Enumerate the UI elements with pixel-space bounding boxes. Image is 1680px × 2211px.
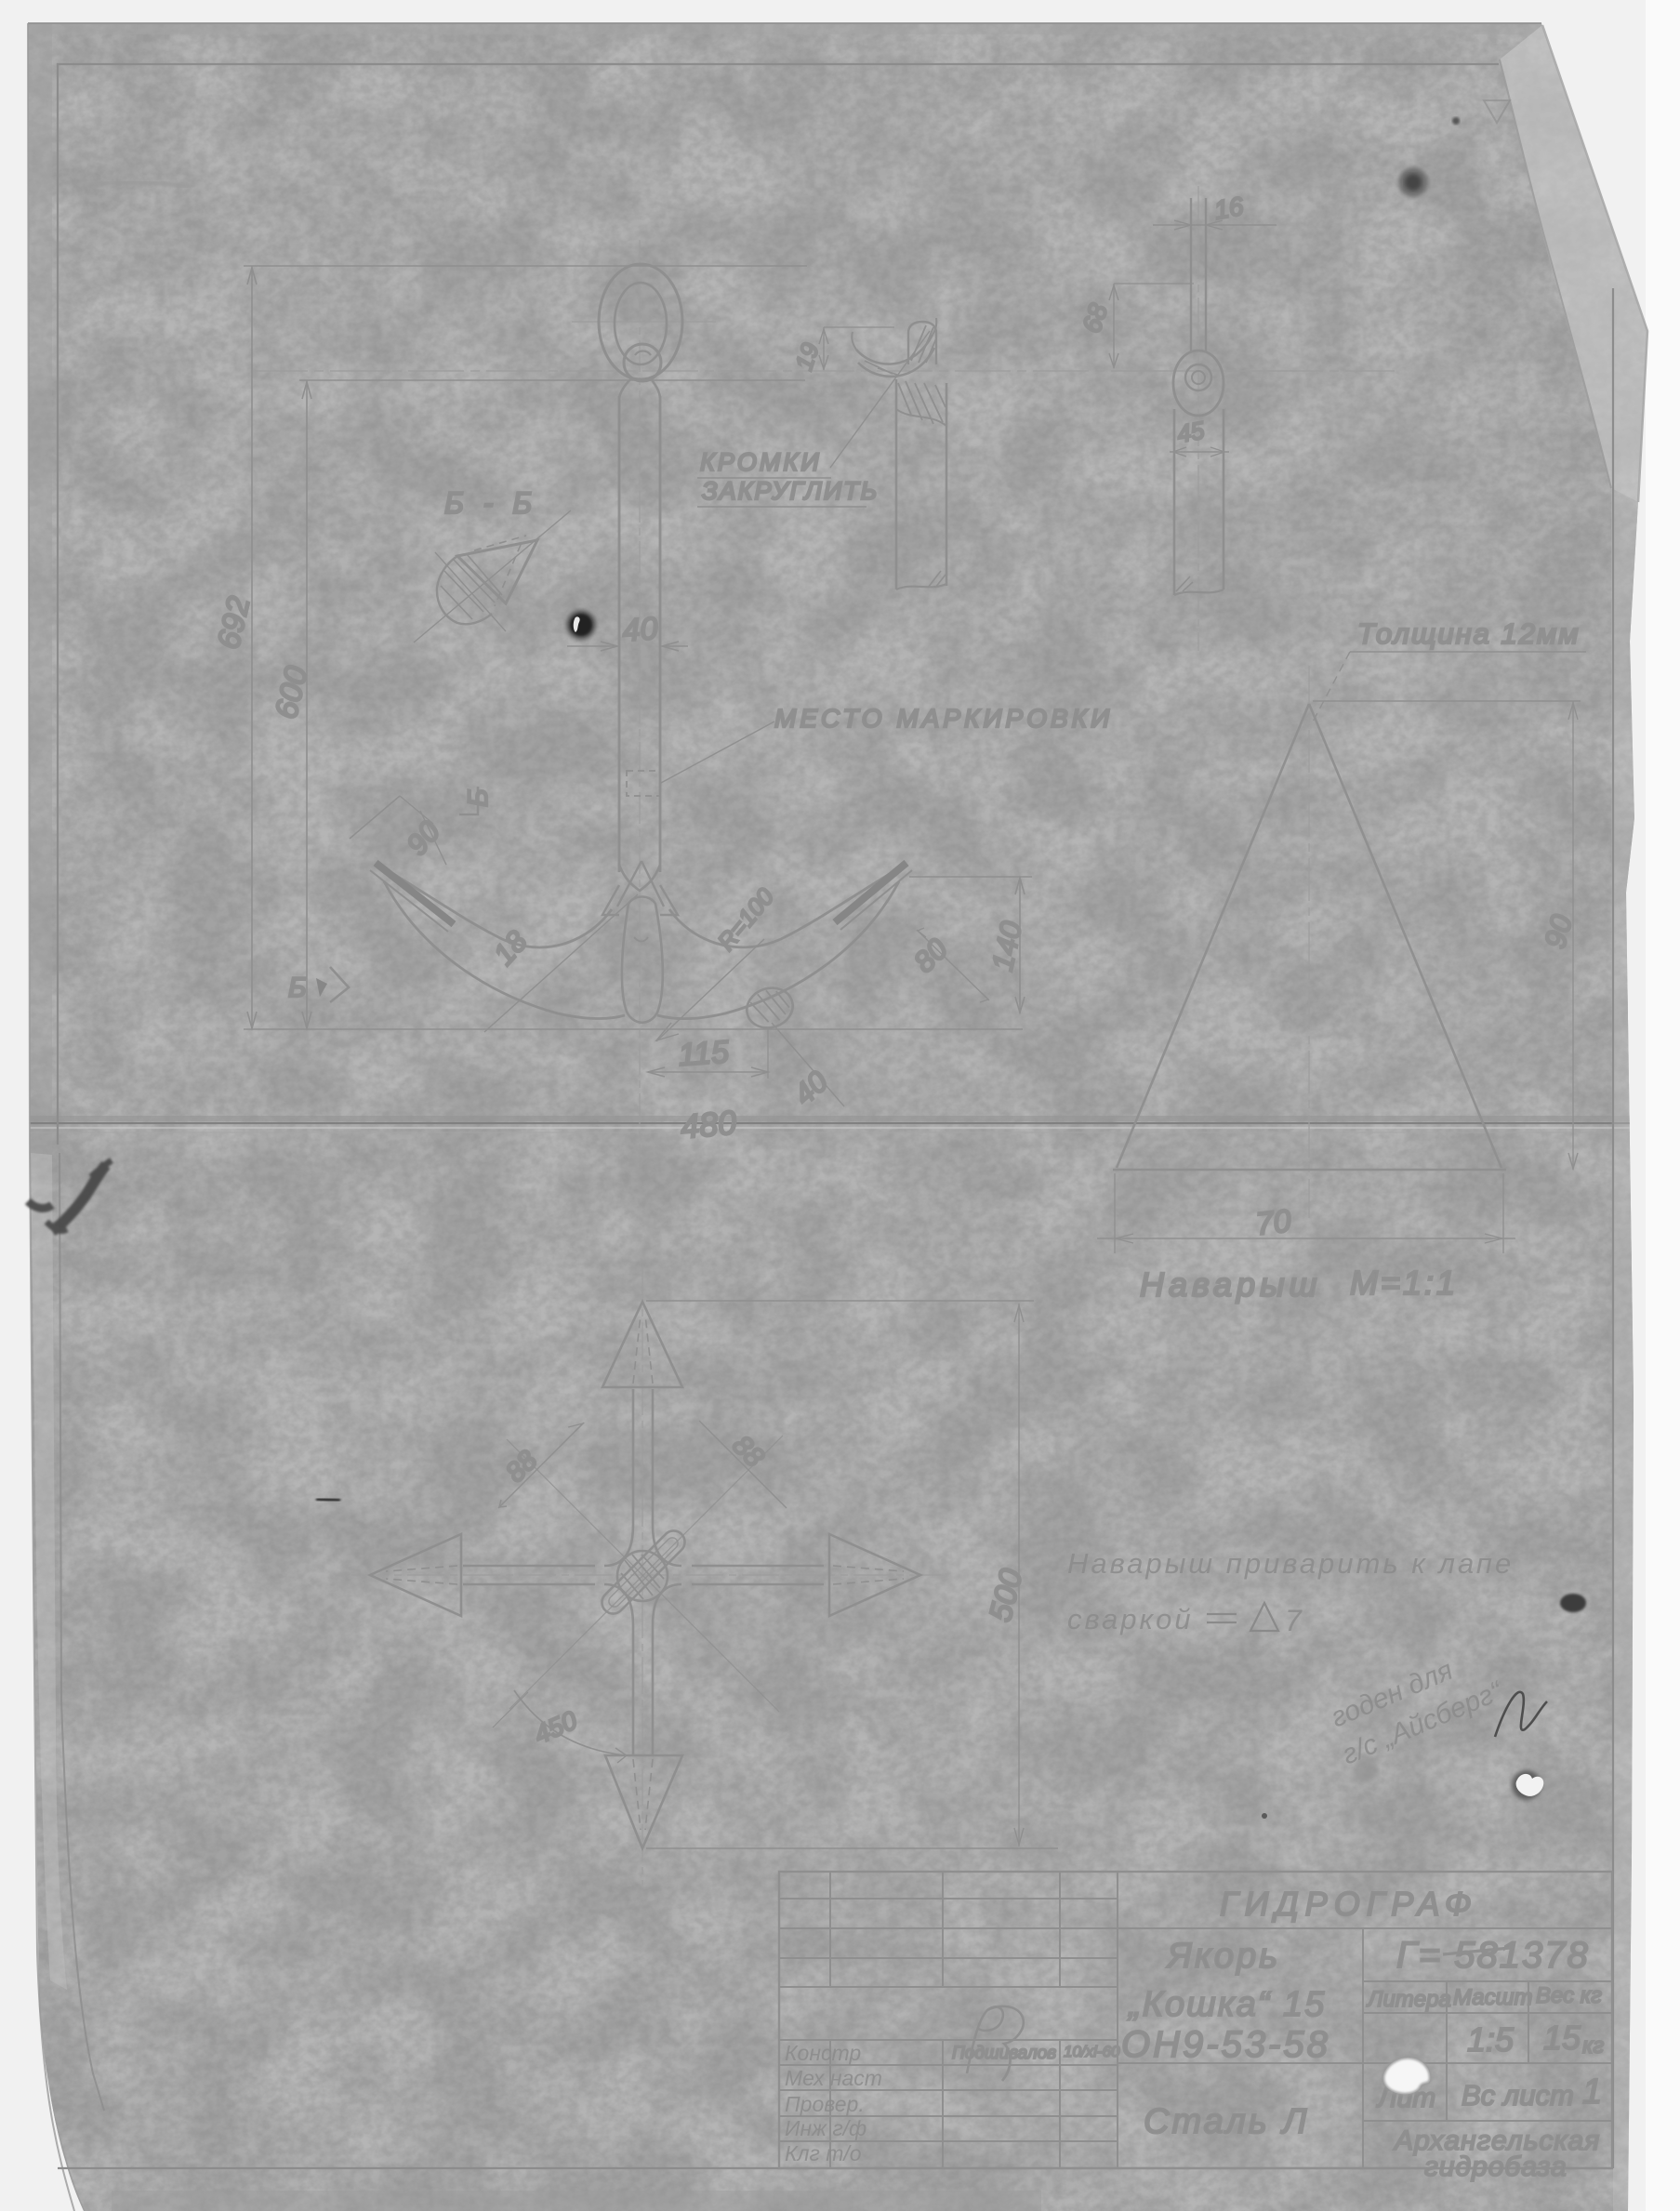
svg-text:115: 115: [677, 1034, 730, 1073]
svg-text:40: 40: [621, 611, 658, 649]
svg-text:Г= 581378: Г= 581378: [1396, 1935, 1590, 1976]
svg-text:Подшивалов: Подшивалов: [952, 2044, 1056, 2063]
svg-text:Клг т/о: Клг т/о: [785, 2141, 862, 2165]
svg-text:Б: Б: [463, 788, 494, 807]
svg-text:Сталь Л: Сталь Л: [1144, 2102, 1309, 2141]
svg-text:45: 45: [1175, 416, 1207, 448]
svg-text:М=1:1: М=1:1: [1350, 1264, 1458, 1302]
svg-text:Масшт: Масшт: [1453, 1985, 1533, 2010]
svg-text:Наварыш: Наварыш: [1140, 1265, 1321, 1304]
svg-text:Инж г/ф: Инж г/ф: [785, 2116, 866, 2140]
svg-text:16: 16: [1212, 192, 1246, 225]
svg-text:Наварыш приварить к лапе: Наварыш приварить к лапе: [1067, 1547, 1514, 1580]
svg-text:Якорь: Якорь: [1166, 1937, 1280, 1976]
svg-text:15: 15: [1543, 2019, 1581, 2057]
svg-text:Вс лист: Вс лист: [1462, 2079, 1574, 2112]
svg-text:480: 480: [679, 1103, 737, 1145]
svg-text:кг: кг: [1582, 2033, 1604, 2059]
svg-text:Б: Б: [288, 973, 307, 1003]
svg-text:1:5: 1:5: [1467, 2020, 1515, 2059]
svg-text:Мех наст: Мех наст: [785, 2066, 882, 2090]
svg-text:10/xi-60: 10/xi-60: [1064, 2043, 1120, 2060]
svg-text:Б - Б: Б - Б: [444, 486, 537, 520]
svg-text:„Кошка“ 15: „Кошка“ 15: [1127, 1985, 1326, 2024]
svg-text:МЕСТО МАРКИРОВКИ: МЕСТО МАРКИРОВКИ: [774, 704, 1113, 733]
svg-text:Толщина 12мм: Толщина 12мм: [1357, 617, 1580, 650]
svg-text:70: 70: [1254, 1203, 1293, 1242]
svg-text:ЗАКРУГЛИТЬ: ЗАКРУГЛИТЬ: [702, 477, 879, 505]
svg-text:ГИДРОГРАФ: ГИДРОГРАФ: [1220, 1885, 1478, 1923]
svg-text:КРОМКИ: КРОМКИ: [700, 448, 822, 476]
svg-text:Литера: Литера: [1366, 1987, 1451, 2012]
svg-text:гидробаза: гидробаза: [1424, 2151, 1568, 2182]
svg-text:Провер.: Провер.: [785, 2092, 865, 2116]
svg-text:Вес кг: Вес кг: [1536, 1983, 1602, 2008]
svg-text:Констр: Констр: [785, 2041, 861, 2065]
svg-text:7: 7: [1285, 1604, 1303, 1637]
svg-text:1: 1: [1582, 2072, 1602, 2112]
svg-text:сваркой: сваркой: [1067, 1603, 1194, 1635]
svg-text:ОН9-53-58: ОН9-53-58: [1121, 2024, 1330, 2065]
